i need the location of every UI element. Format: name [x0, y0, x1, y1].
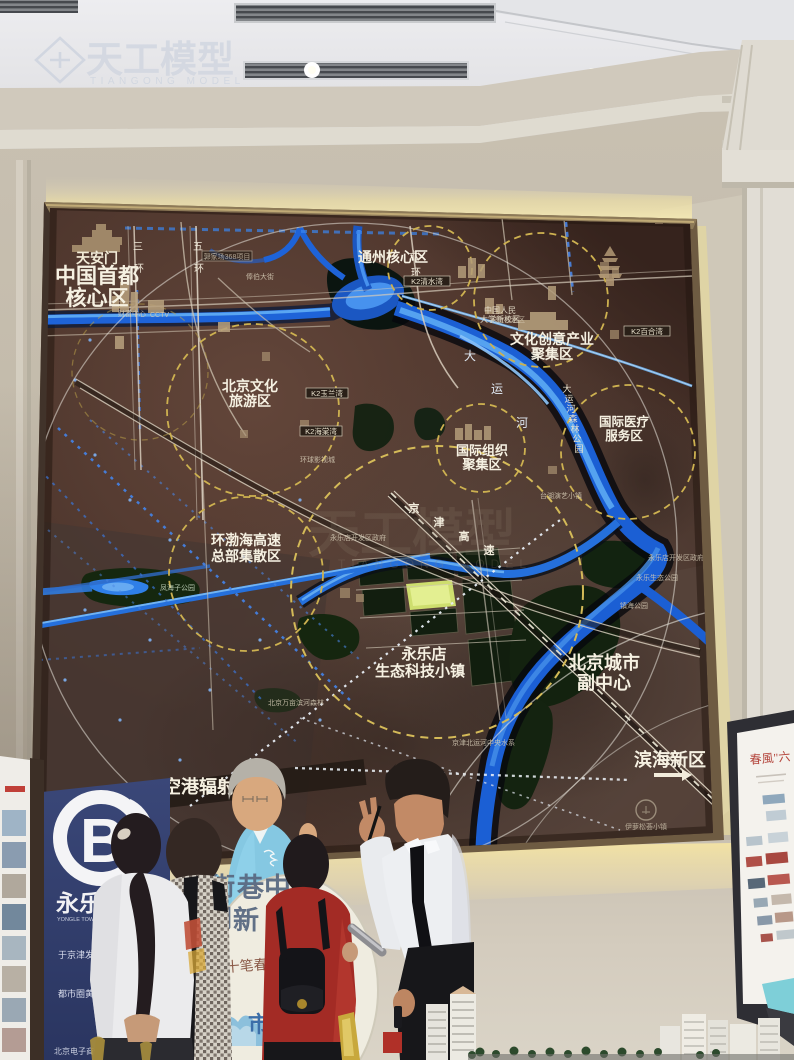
svg-text:K2百合湾: K2百合湾	[631, 326, 663, 336]
svg-text:天工模型: 天工模型	[86, 39, 234, 80]
svg-text:滨海新区: 滨海新区	[634, 749, 706, 770]
svg-text:中国首都: 中国首都	[55, 264, 139, 288]
svg-text:天安门: 天安门	[76, 250, 118, 266]
svg-text:服务区: 服务区	[605, 428, 643, 443]
svg-text:旅游区: 旅游区	[229, 393, 271, 409]
svg-text:聚集区: 聚集区	[530, 346, 573, 362]
svg-text:台湖演艺小镇: 台湖演艺小镇	[540, 491, 582, 500]
svg-text:国际医疗: 国际医疗	[599, 414, 650, 429]
svg-text:京津北运河中央水系: 京津北运河中央水系	[452, 738, 515, 747]
svg-text:北京万亩滨河森林: 北京万亩滨河森林	[268, 698, 324, 707]
svg-text:运: 运	[564, 394, 573, 404]
svg-text:通州核心区: 通州核心区	[358, 249, 428, 265]
svg-text:中国人民: 中国人民	[484, 305, 516, 315]
svg-text:永乐生态公园: 永乐生态公园	[636, 573, 678, 582]
svg-text:副中心: 副中心	[577, 672, 631, 693]
svg-text:K2海棠湾: K2海棠湾	[305, 426, 337, 436]
svg-text:北京城市: 北京城市	[568, 652, 640, 673]
svg-text:三: 三	[133, 242, 143, 253]
svg-text:空港辐射: 空港辐射	[163, 776, 235, 797]
svg-text:环球影视城: 环球影视城	[300, 455, 335, 464]
svg-text:CCTV: CCTV	[150, 312, 169, 319]
svg-text:五: 五	[193, 242, 203, 253]
svg-text:园: 园	[574, 444, 583, 454]
svg-text:环: 环	[194, 264, 204, 275]
svg-text:总部集散区: 总部集散区	[211, 548, 281, 564]
svg-text:环渤海高速: 环渤海高速	[211, 532, 281, 548]
svg-text:河: 河	[516, 416, 528, 430]
svg-text:森: 森	[568, 413, 577, 424]
svg-text:宋庄艺术区: 宋庄艺术区	[490, 315, 525, 324]
svg-text:津: 津	[434, 515, 445, 529]
svg-text:文化创意产业: 文化创意产业	[510, 331, 594, 347]
svg-text:速: 速	[484, 543, 495, 557]
svg-text:俸伯大街: 俸伯大街	[246, 272, 274, 281]
svg-text:北京文化: 北京文化	[222, 378, 278, 394]
svg-text:永乐店开发区政府: 永乐店开发区政府	[648, 553, 704, 562]
svg-text:YONGLE TOWN: YONGLE TOWN	[57, 917, 98, 923]
svg-text:永乐店: 永乐店	[400, 645, 446, 663]
svg-text:镇海公园: 镇海公园	[620, 601, 648, 610]
svg-text:运: 运	[491, 382, 503, 396]
svg-text:高: 高	[459, 529, 470, 543]
svg-text:TIANGONG MODEL: TIANGONG MODEL	[338, 557, 532, 571]
svg-text:凤海子公园: 凤海子公园	[160, 583, 195, 592]
svg-text:生态科技小镇: 生态科技小镇	[375, 662, 465, 680]
svg-text:TIANGONG MODEL: TIANGONG MODEL	[90, 76, 245, 87]
svg-text:环: 环	[134, 264, 144, 275]
svg-text:大: 大	[562, 383, 571, 394]
svg-text:新: 新	[233, 905, 259, 935]
svg-text:郭家场368项目: 郭家场368项目	[204, 252, 251, 261]
svg-text:K2清水湾: K2清水湾	[411, 276, 443, 286]
svg-text:林: 林	[570, 423, 579, 434]
svg-text:K2玉兰湾: K2玉兰湾	[311, 388, 343, 398]
svg-text:大: 大	[464, 349, 476, 363]
svg-text:河: 河	[566, 403, 575, 414]
svg-text:财富中心: 财富中心	[118, 309, 146, 318]
svg-text:公: 公	[572, 434, 581, 444]
svg-text:永乐店开发区政府: 永乐店开发区政府	[330, 533, 386, 542]
svg-text:国际组织: 国际组织	[456, 443, 508, 458]
svg-text:京: 京	[409, 501, 420, 515]
svg-text:伊萝松荟小镇: 伊萝松荟小镇	[625, 822, 667, 831]
svg-text:聚集区: 聚集区	[461, 457, 501, 472]
svg-text:核心区: 核心区	[66, 286, 129, 310]
